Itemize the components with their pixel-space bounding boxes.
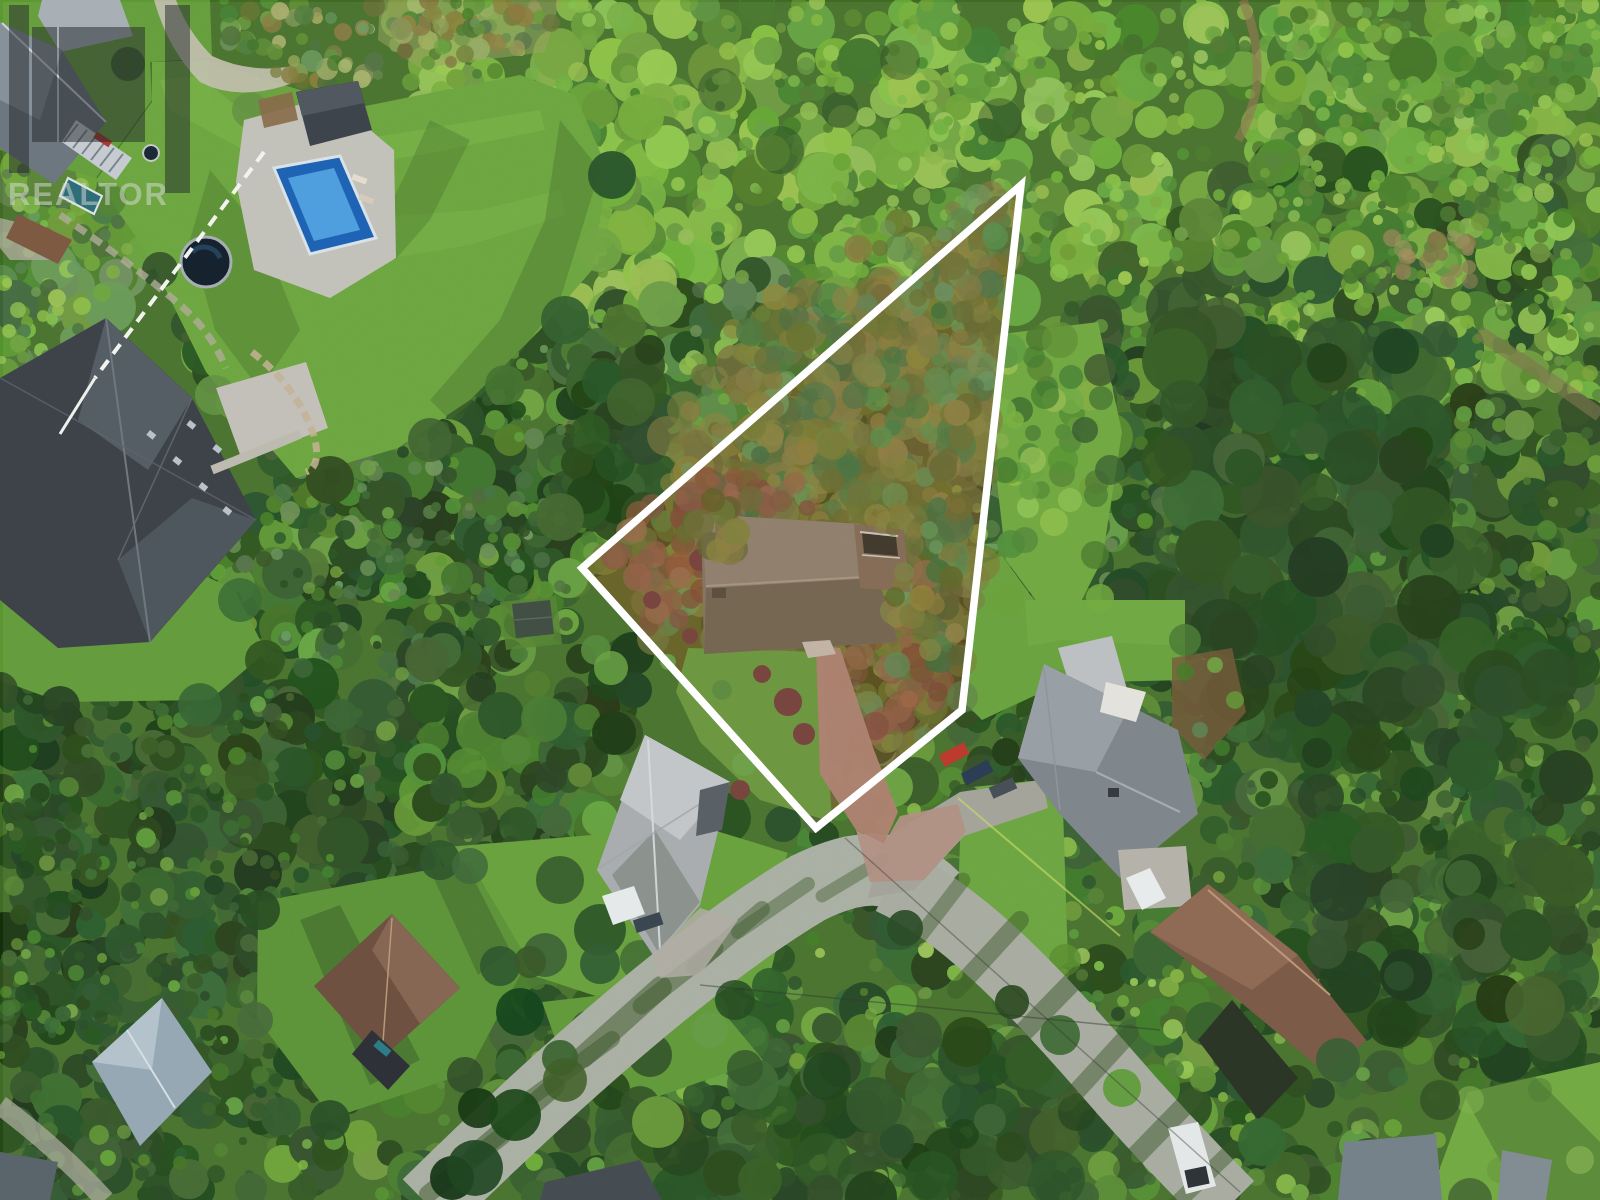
svg-text:REALTOR: REALTOR (8, 177, 169, 212)
